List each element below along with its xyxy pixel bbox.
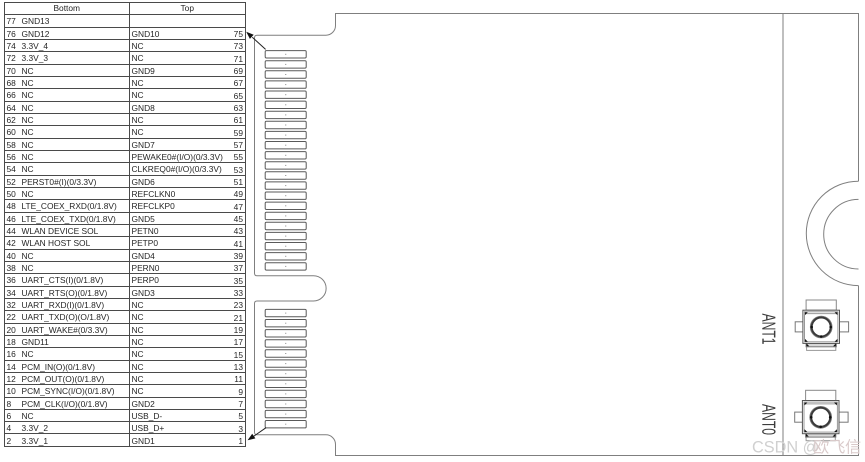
svg-text:CSDN @: CSDN @ xyxy=(752,439,819,457)
